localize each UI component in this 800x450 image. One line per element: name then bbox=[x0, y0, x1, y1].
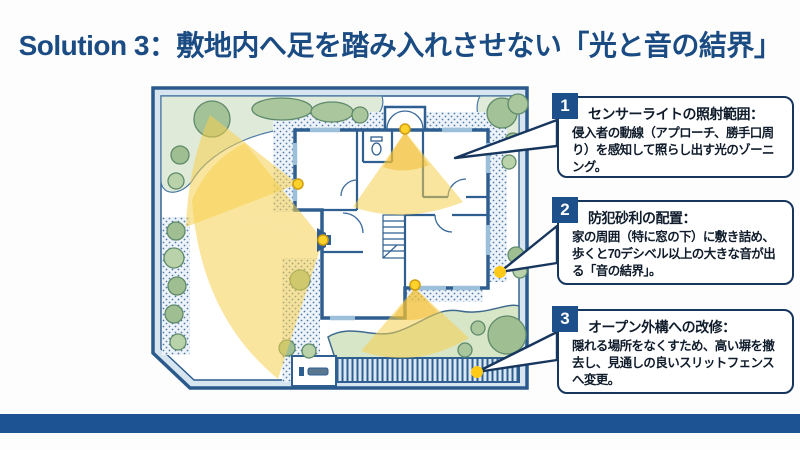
annotation-box-2: 2 防犯砂利の配置： 家の周囲（特に窓の下）に敷き詰め、歩くと70デシベル以上の… bbox=[557, 200, 794, 285]
annotation-body: 侵入者の動線（アプローチ、勝手口周り）を感知して照らし出す光のゾーニング。 bbox=[572, 125, 783, 176]
annotation-body: 隠れる場所をなくすため、高い塀を撤去し、見通しの良いスリットフェンスへ変更。 bbox=[572, 338, 783, 389]
annotation-title: センサーライトの照射範囲： bbox=[588, 105, 783, 123]
gravel-marker-dot bbox=[494, 266, 506, 278]
annotation-title: 防犯砂利の配置： bbox=[588, 209, 783, 227]
gate-structure bbox=[292, 356, 336, 386]
nameplate-icon bbox=[308, 368, 328, 375]
annotation-box-3: 3 オープン外構への改修： 隠れる場所をなくすため、高い塀を撤去し、見通しの良い… bbox=[557, 309, 794, 394]
annotation-box-1: 1 センサーライトの照射範囲： 侵入者の動線（アプローチ、勝手口周り）を感知して… bbox=[557, 96, 794, 178]
door-icon bbox=[299, 367, 304, 376]
annotation-body: 家の周囲（特に窓の下）に敷き詰め、歩くと70デシベル以上の大きな音が出る「音の結… bbox=[572, 229, 783, 280]
annotation-number-badge: 1 bbox=[552, 93, 578, 119]
footer-bar bbox=[0, 414, 800, 433]
sensor-light-dot bbox=[410, 280, 420, 290]
sensor-light-dot bbox=[293, 179, 303, 189]
sensor-light-dot bbox=[400, 124, 410, 134]
annotation-title: オープン外構への改修： bbox=[588, 318, 783, 336]
annotation-number-badge: 3 bbox=[552, 306, 578, 332]
presentation-slide: Solution 3：敷地内へ足を踏み入れさせない「光と音の結界」 bbox=[0, 0, 800, 450]
fence-marker-dot bbox=[471, 366, 483, 378]
sensor-light-dot bbox=[318, 235, 328, 245]
annotation-number-badge: 2 bbox=[552, 197, 578, 223]
